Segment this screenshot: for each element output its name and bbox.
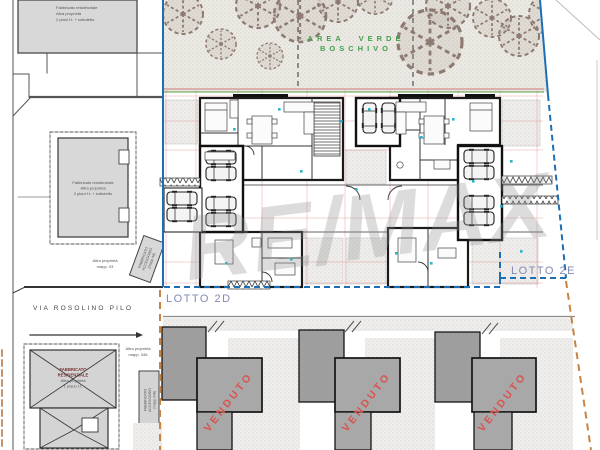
green-area: AREA VERDE BOSCHIVO [163, 0, 569, 92]
parcel-top-left: Fabbricato residenziale Altra proprietà … [18, 0, 137, 53]
parcel-top-left-line1: Fabbricato residenziale [56, 5, 98, 10]
label-lotto-2e: LOTTO 2E [511, 265, 576, 277]
street-label: VIA ROSOLINO PILO [33, 305, 133, 312]
parcel-top-left-line3: 2 piani f.t. + sottotetto [56, 17, 95, 22]
tree-icon [206, 29, 236, 59]
car-icon [362, 103, 377, 133]
bottom-left-building-line1: FABBRICATO [59, 367, 87, 372]
parcel-mid-left-note1: Altra proprietà [92, 258, 118, 263]
car-icon [381, 103, 396, 133]
bottom-left-building-line2: RESIDENZIALE [58, 373, 89, 378]
parcel-mid-left-line3: 2 piani f.t. + sottotetto [74, 191, 113, 196]
tree-icon [257, 43, 283, 69]
tree-icon [163, 0, 203, 34]
bottom-left-note1: Altra proprietà [125, 346, 151, 351]
site-plan-drawing: AREA VERDE BOSCHIVO Fabbricato residenzi… [0, 0, 600, 450]
parcel-mid-left-line1: Fabbricato residenziale [72, 180, 114, 185]
bottom-left-building-line4: 1 piano f.t. [64, 384, 83, 389]
bottom-left-note2: mapp. 346 [129, 352, 149, 357]
parcel-mid-left-line2: Altra proprietà [80, 186, 106, 191]
area-verde-label-line2: BOSCHIVO [320, 44, 392, 53]
area-verde-label-line1: AREA VERDE [308, 34, 405, 43]
accessory-building-bottom: FABBRICATO ACCESSORIO (mapp.348) [139, 371, 159, 429]
bottom-left-building-line3: Altra proprietà [60, 378, 86, 383]
site-plan-page: AREA VERDE BOSCHIVO Fabbricato residenzi… [0, 0, 600, 450]
accessory-bottom-line3: (mapp.348) [153, 391, 157, 409]
accessory-bottom-line1: FABBRICATO [144, 389, 148, 412]
car-icon [206, 166, 236, 181]
accessory-bottom-line2: ACCESSORIO [148, 388, 152, 412]
parcel-top-left-line2: Altra proprietà [56, 11, 82, 16]
stairs [314, 102, 340, 156]
parcel-mid-left-note2: mapp. 93 [97, 264, 114, 269]
